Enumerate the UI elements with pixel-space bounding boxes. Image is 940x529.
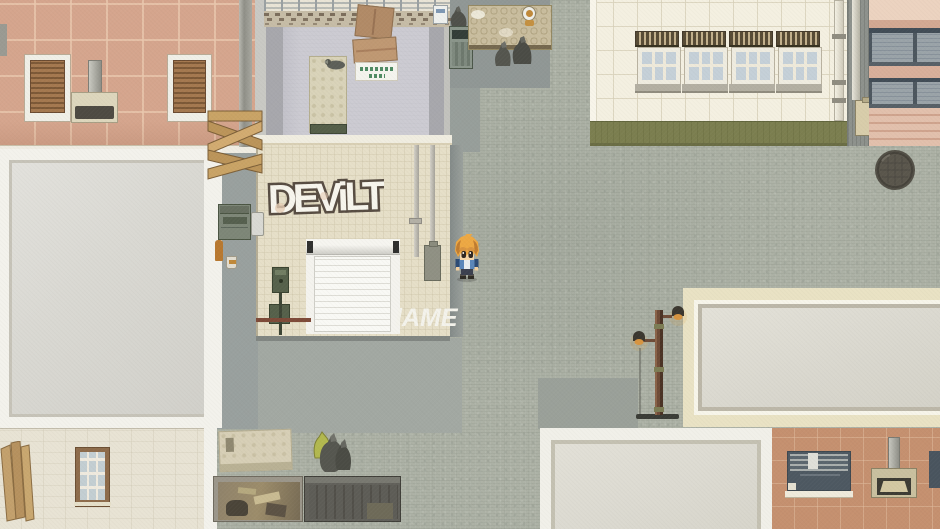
svg-text:lAME: lAME — [395, 304, 459, 332]
